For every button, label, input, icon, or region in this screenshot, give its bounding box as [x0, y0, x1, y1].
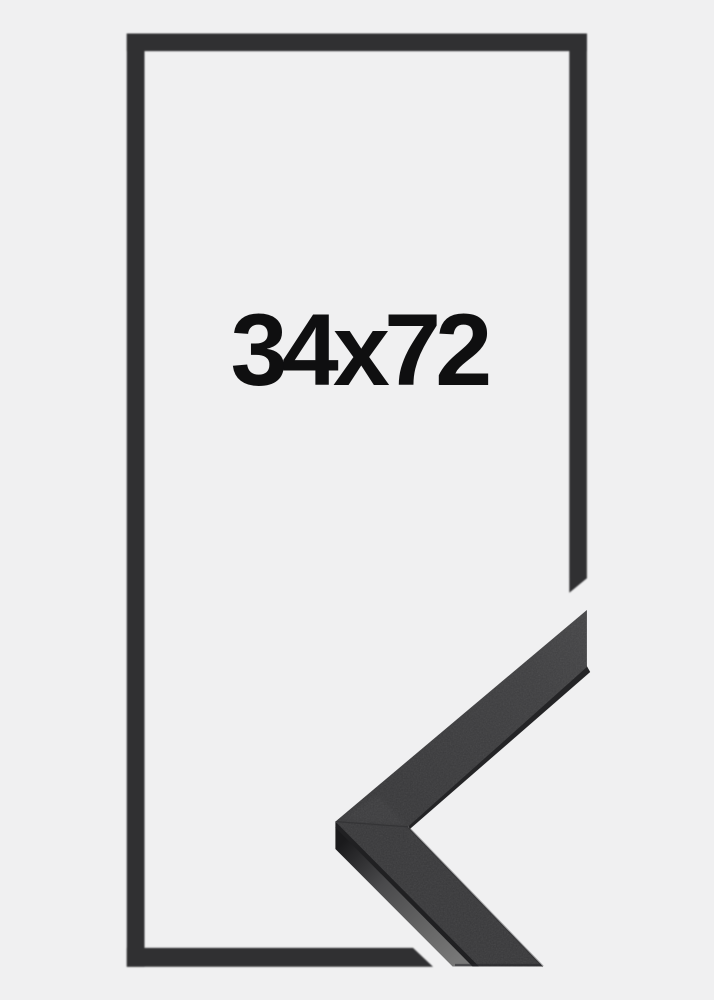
svg-text:34x72: 34x72 — [230, 292, 488, 407]
